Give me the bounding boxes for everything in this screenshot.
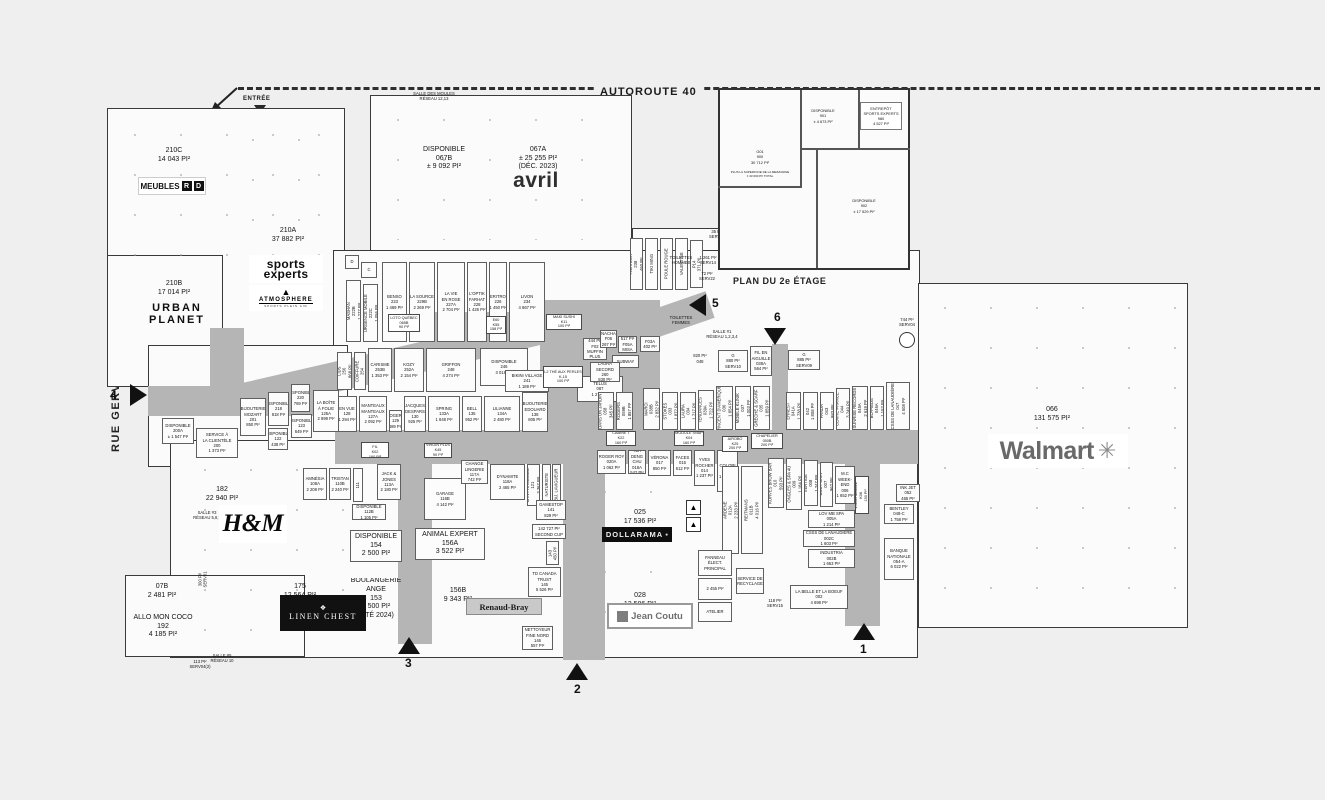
entrance-5-marker-icon	[686, 294, 706, 316]
store-room: INK JET052465 PI²	[896, 484, 920, 502]
store-room: DISPONIBLE1542 500 PI²	[350, 530, 402, 562]
store-room: LA VIEEN ROSE227A2 704 PI²	[437, 262, 465, 342]
store-room: BIJOUTERIEMOZART201850 PI²	[240, 398, 266, 436]
area-label: 18222 940 PI²	[192, 485, 252, 505]
area-label: TOILETTESHOMMES	[664, 254, 698, 266]
store-room: MASHAN222B1 277 PI²	[346, 280, 361, 342]
area-label: SALLE #3RÉSEAU 5,6,7	[192, 508, 222, 522]
store-room: TENDANCES039A1 722 PI²	[698, 390, 714, 430]
store-room: LA BOÎTEÀ FOLIE125A2 899 PI²	[313, 390, 339, 432]
stairs-icon	[899, 332, 915, 348]
entrance-2-marker-icon	[566, 660, 588, 680]
area-label: 820 PI²048	[686, 352, 714, 365]
store-room: CHANGELINGERIE117A742 PI²	[461, 460, 488, 484]
store-room: LIVON2344 667 PI²	[509, 262, 545, 342]
entrance-1-marker-icon	[853, 620, 875, 640]
area-label: 210C14 043 PI²	[142, 145, 206, 167]
kiosk: E60K55158 PI²	[486, 316, 506, 334]
store-room: DISPONIBLE218818 PI²	[268, 392, 289, 426]
store-room: ROGERS059B1 857 PI²	[616, 392, 633, 430]
store-room: LILIANNE134A2 480 PI²	[484, 396, 520, 432]
store-room: VÉRONA017850 PI²	[648, 450, 671, 476]
store-room: GRÈCHE & SCARF0351 859 PI²	[753, 386, 770, 430]
kiosk: MAKI SUSHIK11100 PI²	[546, 314, 582, 330]
entrance-3-marker-icon	[398, 634, 420, 654]
kiosk: VIRGIN PLUSK4590 PI²	[424, 443, 452, 458]
store-room: KURVES BROW BAR010593 PI²	[768, 458, 784, 508]
store-room: 143450 PI²	[546, 541, 559, 565]
store-room: TRISTAN110B2 240 PI²	[329, 468, 351, 500]
area-label: SALLE DES MOULESRÉSEAU 12,13	[412, 90, 456, 102]
store-room: L'OPTIKFARHAT2281 426 PI²	[467, 262, 487, 342]
atmosphere-logo: ▲ ATMOSPHERE SPORTS PLEIN AIR	[249, 285, 323, 311]
store-room: MOBILE KLINIK0371 003 PI²	[735, 386, 751, 430]
inset-wall	[816, 150, 818, 268]
entrance-6-marker-icon	[764, 328, 786, 348]
area-label: DISPONIBLE067B± 9 092 PI²	[408, 142, 480, 176]
store-room: BODY SKIN007962 PI²	[820, 462, 833, 507]
store-room: M.CWEEK-END0061 652 PI²	[835, 466, 855, 504]
store-room: SERVICE DERECYCLAGE	[736, 568, 764, 594]
jean-coutu-crest-icon	[617, 611, 628, 622]
jean-coutu-wordmark: Jean Coutu	[631, 611, 683, 622]
meubles-d-icon: D	[194, 181, 204, 191]
store-room: DYNAMITE118A2 465 PI²	[490, 464, 525, 500]
mountain-icon: ▲	[282, 288, 291, 297]
store-room: NETTOYEURFINE NORD146557 PI²	[522, 626, 553, 650]
entrance-3-number: 3	[405, 656, 412, 670]
area-label: 066131 575 PI²	[1012, 404, 1092, 426]
area-label: 118 PI²SERV15	[760, 596, 790, 610]
store-room: CARISME253B1 353 PI²	[368, 348, 392, 392]
inset-wall	[718, 186, 802, 188]
elevator-icon: ▲	[686, 517, 701, 532]
store-room: D	[345, 255, 359, 269]
store-room: ARDÈNE012A2 233 PI²	[722, 466, 739, 554]
store-room: AMNÉSIA108A2 208 PI²	[303, 468, 327, 500]
jean-coutu-logo: Jean Coutu	[607, 603, 693, 629]
store-room: F03A402 PI²	[640, 336, 660, 352]
walmart-wordmark: Walmart	[1000, 437, 1094, 466]
corridor	[210, 328, 244, 390]
linen-chest-wordmark: LINEN CHEST	[289, 612, 357, 621]
renaud-bray-wordmark: Renaud-Bray	[479, 602, 528, 612]
store-room: DISPONIBLE122438 PI²	[268, 428, 288, 450]
dollarama-dot-icon: ●	[665, 532, 668, 538]
area-label: 210B17 014 PI²	[142, 278, 206, 300]
store-room: JACK &JONES113A2 180 PI²	[377, 464, 401, 500]
store-room: C	[361, 262, 377, 278]
store-room: 142 727 PI²SECOND CUP	[532, 524, 566, 539]
inset-wall	[800, 90, 802, 186]
store-room: LAURASECORD260830 PI²	[590, 362, 620, 382]
store-room: LA BELLE ET LA BOEUF0024 698 PI²	[790, 585, 848, 609]
store-room: BENTLEY048-C1 758 PI²	[884, 504, 914, 524]
meubles-rd-logo: MEUBLES R D	[138, 177, 206, 195]
store-room: LIDS256868 PI²	[337, 352, 352, 390]
area-label: 07B2 481 PI²	[134, 580, 190, 604]
inset-room-label: G0190030 712 PI²	[738, 146, 782, 168]
store-room: FACES015612 PI²	[673, 450, 692, 476]
store-room: LOV MB SPA005A1 214 PI²	[808, 510, 855, 528]
store-room: NACHAF06267 PI²	[600, 330, 617, 348]
store-room: DANS UN JARDIN058345 PI²	[598, 392, 614, 430]
store-room: PANDA043983 PI²	[820, 392, 834, 430]
store-room: BELL135952 PI²	[462, 396, 482, 432]
area-label: 300 PI²SERV01	[196, 564, 210, 594]
store-room: COIFFURE254	[354, 352, 366, 390]
store-room: PANNEAUÉLECT.PRINCIPAL	[698, 550, 732, 576]
kiosk: LOTO QUÉBEC065B90 PI²	[388, 314, 420, 332]
store-room: ATELIER	[698, 602, 732, 622]
entree-label: ENTRÉE	[243, 96, 270, 102]
sports-experts-logo: sports experts	[249, 255, 323, 283]
store-room: GAMESTOP141829 PI²	[536, 500, 566, 520]
store-room: G880 PI²SERV10	[718, 350, 748, 372]
dollarama-logo: DOLLARAMA ●	[602, 527, 672, 542]
store-room: DISPONIBLE200A± 1 547 PI²	[162, 418, 194, 444]
store-room: INDUSTRIA002B1 663 PI²	[808, 549, 855, 568]
meubles-rd-wordmark: MEUBLES	[140, 182, 179, 191]
inset-room-label: PLUS LA SUPERFICIE DE LA MEZZANINE± 43 0…	[728, 169, 792, 181]
store-room: CSSS DE LANAUDIÈRE002C1 603 PI²	[803, 530, 855, 547]
store-room: GARAGE116B4 142 PI²	[424, 478, 466, 520]
store-room: 517 PI²F05AMISA	[618, 336, 637, 353]
store-room: LILIANNE1111 105 PI²	[353, 468, 363, 502]
mall-floor-plan: AUTOROUTE 40 RUE GERVAIS ENTRÉE DCMASHAN…	[0, 0, 1325, 800]
store-room: ERNEST041A1 738 PI²	[786, 392, 801, 430]
store-room: VERTIGE0081 247 PI²	[804, 460, 818, 506]
kiosk: WAVES SANS FILK02160 PI²	[361, 442, 389, 458]
inset-wall	[802, 148, 910, 150]
store-room: FIL ENAIGUILLE038A564 PI²	[750, 346, 772, 376]
entrance-4-number: 4	[110, 388, 117, 402]
meubles-r-icon: R	[182, 181, 192, 191]
store-room: YVESROCHER0141 237 PI²	[694, 450, 715, 486]
store-room: DISPONIBLE123649 PI²	[291, 414, 312, 438]
store-room: REITMANS011B4 016 PI²	[741, 466, 763, 554]
entrance-5-number: 5	[712, 296, 719, 310]
linen-chest-logo: ❖ LINEN CHEST	[280, 595, 366, 631]
inset-caption: PLAN DU 2e ÉTAGE	[733, 276, 826, 286]
store-room: URGENCE MOBILE222C1 056 PI²	[363, 284, 378, 342]
store-room: ROGERS129489 PI²	[389, 410, 402, 432]
store-room: JACQUESDESPARS130925 PI²	[404, 396, 426, 432]
store-room: 0421 808 PI²	[803, 392, 818, 430]
store-room: ONGLES & SPA 4U0091 184 PI²	[786, 458, 802, 510]
area-label: 210A37 882 PI²	[252, 225, 324, 247]
area-label: 02517 536 PI²	[610, 508, 670, 528]
atmosphere-wordmark: ATMOSPHERE	[259, 297, 313, 304]
experts-word: experts	[264, 269, 309, 279]
store-room: VINCENT D'AMÉRIQUE0361 854 PI²	[716, 386, 733, 430]
kiosk: AIROBOK25200 PI²	[722, 436, 748, 452]
store-room: DISPONIBLE112B1 105 PI²	[352, 504, 386, 520]
store-room: BO-PIEDS046A1 152 PI²	[870, 386, 884, 430]
store-room: SPRING133A1 848 PI²	[428, 396, 460, 432]
corridor	[563, 464, 605, 660]
area-label: 744 PI²SERV04	[890, 316, 924, 328]
entrance-6-number: 6	[774, 310, 781, 324]
walmart-spark-icon: ✳	[1098, 438, 1116, 464]
store-room: BIJOUTERIEEDOUARD138805 PI²	[522, 392, 548, 432]
area-label: SALLE #5RÉSEAU 10	[206, 652, 238, 664]
store-room: MANTEAUXMANTEAUX127A2 092 PI²	[359, 396, 387, 432]
kiosk: MODULE SNAPK04160 PI²	[674, 431, 704, 446]
avril-logo: avril	[503, 168, 569, 194]
hm-logo: H&M	[219, 505, 287, 543]
elevator-icon: ▲	[686, 500, 701, 515]
store-room: G885 PI²SERV09	[788, 350, 820, 370]
planet-word: PLANET	[149, 315, 205, 327]
store-room: AMATEUR238460 PI²	[630, 238, 643, 290]
inset-room-label: DISPONIBLE902± 17 529 PI²	[842, 194, 886, 218]
kiosk: VISON MOBILEK08150 PI²	[855, 476, 869, 514]
entrance-2-number: 2	[574, 682, 581, 696]
inset-room-label: DISPONIBLE901± 4 673 PI²	[806, 104, 840, 128]
store-room: MARCI038B2 832 PI²	[643, 388, 660, 430]
store-room: SUNRISE RECORDS045A2 619 PI²	[852, 386, 868, 430]
store-room: KOZY252A2 154 PI²	[394, 348, 424, 392]
store-room: TIKI MING	[645, 238, 658, 290]
entrance-4-marker-icon	[130, 384, 150, 406]
store-room: SERVICE ÀLA CLIENTÈLE2001 373 PI²	[196, 428, 238, 458]
inset-room-label: ENTREPÔTSPORTS EXPERTS9804 527 PI²	[860, 102, 902, 130]
store-room: BANQUENATIONALE054-A6 022 PI²	[884, 538, 914, 580]
kiosk: CHAPELIER050B200 PI²	[751, 433, 783, 449]
linen-chest-icon: ❖	[320, 605, 326, 613]
entrance-1-number: 1	[860, 642, 867, 656]
store-room: CLAIRE FRANCE0443 249 PI²	[836, 388, 850, 430]
store-room: GRIFFON2484 274 PI²	[426, 348, 476, 392]
store-room: DISPONIBLE220769 PI²	[291, 384, 310, 412]
store-room: 2 455 PI²	[698, 578, 732, 600]
store-room: TEADENG CHU018A542 PI²	[628, 450, 646, 474]
area-label: SALLE #1RÉSEAU 1,2,3,4	[704, 328, 740, 340]
store-room: STOKES0331 872 PI²	[662, 392, 678, 430]
store-room: TD CANADATRUST1455 526 PI²	[528, 567, 561, 597]
store-room: CSSS DE LANAUDIÈRE0474 508 PI²	[886, 382, 910, 430]
urban-planet-logo: URBAN PLANET	[144, 300, 210, 330]
store-room: EN VUE1281 294 PI²	[337, 396, 357, 432]
kiosk: L2 THÉ AUX PERLESK-15100 PI²	[543, 366, 583, 388]
atmosphere-subtitle: SPORTS PLEIN AIR	[264, 304, 307, 308]
dollarama-wordmark: DOLLARAMA	[606, 530, 663, 539]
renaud-bray-logo: Renaud-Bray	[466, 598, 542, 615]
store-room: ANIMAL EXPERT156A3 522 PI²	[415, 528, 485, 560]
area-label: 72 PI²SERV22	[690, 270, 724, 282]
store-room: ROGER ROY020A1 062 PI²	[597, 450, 626, 474]
area-label: ALLO MON COCO1924 185 PI²	[132, 612, 194, 642]
store-room: LAURA0341 717 PI²	[680, 392, 696, 430]
walmart-logo: Walmart ✳	[988, 434, 1128, 468]
kiosk: CABINE TK22160 PI²	[606, 431, 636, 446]
